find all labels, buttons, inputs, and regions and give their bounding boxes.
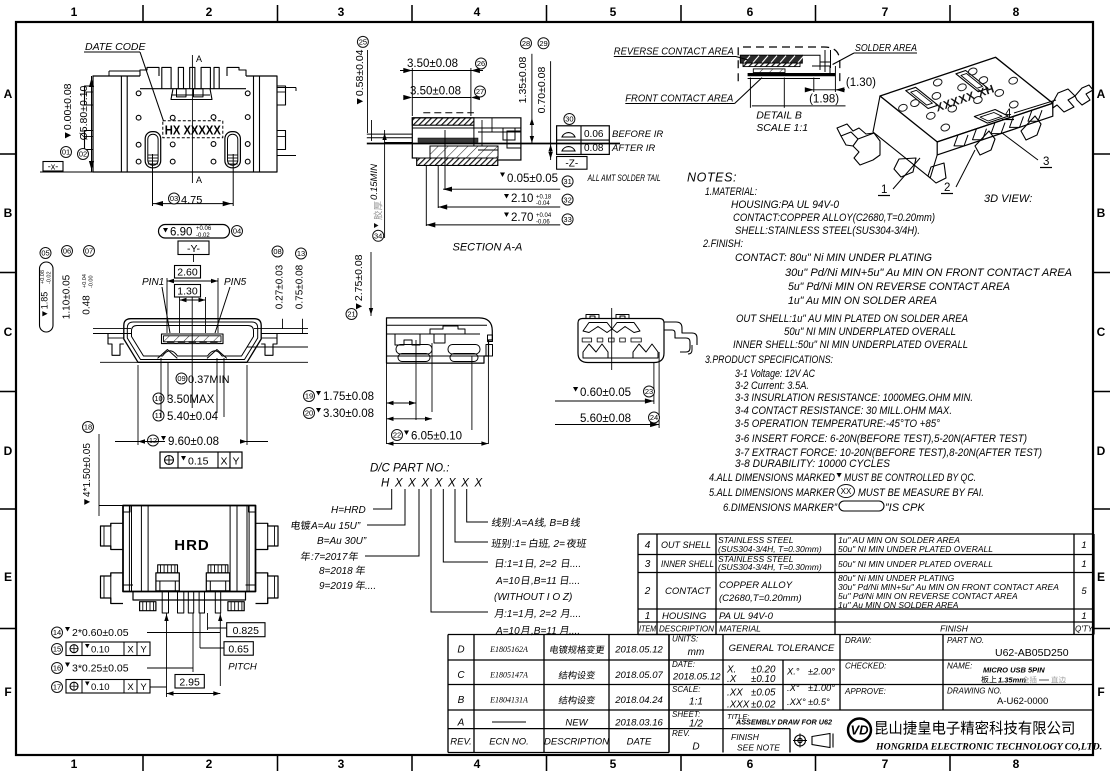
svg-text:HX XXXXX: HX XXXXX	[165, 123, 221, 138]
svg-text:, 2=2: , 2=2	[534, 559, 557, 570]
svg-text:3: 3	[338, 5, 345, 19]
svg-text:50u" NI MIN UNDER PLATED OVERA: 50u" NI MIN UNDER PLATED OVERALL	[838, 544, 993, 554]
svg-text:5u" Pd/Ni MIN ON REVERSE CONTA: 5u" Pd/Ni MIN ON REVERSE CONTACT AREA	[788, 281, 1010, 293]
svg-text:D: D	[457, 645, 464, 656]
svg-text:3: 3	[645, 559, 651, 570]
svg-text:12: 12	[149, 436, 157, 445]
svg-text:.XXX: .XXX	[727, 700, 750, 711]
svg-text:OUT SHELL:1u" AU MIN PLATED ON: OUT SHELL:1u" AU MIN PLATED ON SOLDER AR…	[736, 313, 968, 325]
svg-text:1u" Au MIN ON SOLDER AREA: 1u" Au MIN ON SOLDER AREA	[838, 600, 959, 610]
svg-text:1.MATERIAL:: 1.MATERIAL:	[705, 186, 757, 198]
svg-text:0.75±0.08: 0.75±0.08	[295, 264, 306, 309]
svg-text:DETAIL B: DETAIL B	[756, 110, 802, 122]
svg-text:SCALE:: SCALE:	[672, 685, 700, 694]
svg-text:▼0.00±0.08: ▼0.00±0.08	[62, 83, 74, 140]
svg-text:2: 2	[944, 182, 950, 194]
svg-text:E1805147A: E1805147A	[489, 671, 528, 680]
svg-text:+0.08: +0.08	[40, 270, 46, 284]
svg-text:31: 31	[563, 177, 571, 186]
svg-text:3.50±0.08: 3.50±0.08	[407, 58, 458, 70]
svg-text:GENERAL TOLERANCE: GENERAL TOLERANCE	[729, 643, 835, 654]
svg-text:±0.02: ±0.02	[751, 700, 776, 711]
svg-text:4: 4	[645, 540, 651, 551]
svg-text:Y: Y	[140, 682, 147, 693]
svg-text:22: 22	[393, 431, 401, 440]
svg-text:ECN NO.: ECN NO.	[489, 737, 529, 748]
svg-text:8=2018: 8=2018	[319, 566, 353, 577]
svg-text:8: 8	[1013, 757, 1020, 771]
svg-text:AFTER IR: AFTER IR	[611, 143, 655, 154]
svg-text:PIN5: PIN5	[224, 277, 247, 288]
svg-text:....: ....	[570, 559, 581, 570]
svg-text:SOLDER AREA: SOLDER AREA	[855, 42, 917, 54]
svg-text:2018.05.12: 2018.05.12	[614, 645, 663, 656]
svg-text:1: 1	[881, 184, 887, 196]
svg-text:1: 1	[1081, 540, 1086, 551]
svg-text:0.37MIN: 0.37MIN	[188, 374, 230, 386]
svg-text::1=1: :1=1	[504, 559, 524, 570]
svg-text:-0.02: -0.02	[47, 271, 53, 284]
svg-text:SECTION A-A: SECTION A-A	[453, 242, 523, 254]
svg-text:27: 27	[476, 87, 484, 96]
svg-text:Ø5.80±0.10: Ø5.80±0.10	[78, 85, 90, 140]
svg-text:....: ....	[569, 576, 580, 587]
svg-text:E1804131A: E1804131A	[489, 696, 528, 705]
svg-text:B: B	[1097, 206, 1106, 220]
svg-text:HOUSING: HOUSING	[662, 611, 706, 622]
svg-text:SEE NOTE: SEE NOTE	[737, 743, 780, 753]
svg-text:01: 01	[62, 148, 70, 157]
svg-text:2018.05.12: 2018.05.12	[672, 672, 721, 683]
svg-text:Y: Y	[232, 456, 239, 468]
svg-text:26: 26	[477, 59, 485, 68]
svg-text:A: A	[196, 54, 202, 64]
svg-text:+0.04: +0.04	[82, 274, 88, 288]
svg-text:0.08: 0.08	[584, 143, 604, 154]
svg-text:32: 32	[563, 195, 571, 204]
svg-text:, 2=2: , 2=2	[534, 609, 557, 620]
svg-text:B=Au 30U”: B=Au 30U”	[317, 536, 367, 547]
svg-text::A=A: :A=A	[512, 518, 534, 529]
svg-text:6.05±0.10: 6.05±0.10	[411, 431, 462, 443]
svg-text:±0.10: ±0.10	[751, 674, 776, 685]
svg-text:FINISH: FINISH	[731, 732, 760, 742]
svg-text:+0.18: +0.18	[536, 195, 552, 201]
svg-text:3.50MAX: 3.50MAX	[167, 394, 215, 406]
svg-text:”IS CPK: ”IS CPK	[885, 502, 925, 514]
svg-text:0.15MIN: 0.15MIN	[369, 164, 380, 200]
svg-text:, B=B: , B=B	[544, 518, 569, 529]
svg-text:4.75: 4.75	[181, 195, 202, 207]
svg-text:FINISH: FINISH	[940, 624, 969, 634]
svg-text:MUST BE MEASURE BY FAI.: MUST BE MEASURE BY FAI.	[858, 487, 984, 499]
svg-text:FRONT CONTACT AREA: FRONT CONTACT AREA	[625, 93, 733, 105]
svg-text:6.DIMENSIONS MARKER”: 6.DIMENSIONS MARKER”	[723, 502, 838, 514]
svg-text:(WITHOUT I O Z): (WITHOUT I O Z)	[494, 592, 572, 603]
svg-text:2: 2	[206, 5, 213, 19]
svg-text:1.30: 1.30	[177, 286, 198, 298]
svg-text:21: 21	[347, 310, 355, 319]
svg-text:-x-: -x-	[48, 162, 59, 172]
svg-text:16: 16	[53, 664, 61, 673]
svg-text:±0.5°: ±0.5°	[808, 697, 830, 707]
svg-text:REV.: REV.	[672, 729, 690, 738]
svg-text:07: 07	[85, 247, 93, 256]
svg-text:03: 03	[170, 194, 178, 203]
svg-text:4: 4	[474, 757, 481, 771]
svg-text:0.48: 0.48	[82, 295, 93, 315]
svg-text:DRAWING NO.: DRAWING NO.	[947, 687, 1002, 696]
svg-text:50u" NI MIN UNDER PLATED OVERA: 50u" NI MIN UNDER PLATED OVERALL	[838, 559, 993, 569]
svg-text:13: 13	[297, 249, 305, 258]
svg-text:MATERIAL: MATERIAL	[719, 624, 761, 634]
svg-text:1: 1	[1081, 559, 1086, 570]
svg-text:VD: VD	[850, 723, 869, 738]
svg-text:2: 2	[644, 586, 651, 597]
svg-text:3*0.25±0.05: 3*0.25±0.05	[72, 663, 129, 675]
svg-text:8: 8	[1013, 5, 1020, 19]
svg-text:.X: .X	[727, 674, 737, 685]
svg-text:6.90: 6.90	[170, 227, 192, 239]
svg-text:DESCRIPTION: DESCRIPTION	[659, 624, 715, 634]
svg-text:±0.05: ±0.05	[751, 688, 776, 699]
svg-text:-0.04: -0.04	[536, 201, 550, 207]
svg-text:5: 5	[610, 757, 617, 771]
svg-text:-Z-: -Z-	[565, 159, 578, 170]
svg-text:PART NO.: PART NO.	[947, 636, 984, 645]
svg-text:C: C	[457, 670, 465, 681]
svg-text:X: X	[127, 645, 134, 656]
svg-text:NAME:: NAME:	[947, 662, 972, 671]
svg-text:5: 5	[1081, 586, 1087, 597]
svg-text:CONTACT: CONTACT	[665, 586, 711, 597]
svg-text:34: 34	[374, 232, 382, 241]
svg-text:DATE: DATE	[627, 737, 652, 748]
svg-text:F: F	[4, 685, 11, 699]
svg-text:H X X X X X X X: H X X X X X X X	[381, 478, 483, 490]
svg-text:4: 4	[474, 5, 481, 19]
svg-text:MUST BE CONTROLLED BY QC.: MUST BE CONTROLLED BY QC.	[844, 472, 976, 484]
svg-text:D: D	[4, 444, 13, 458]
svg-text:U62-AB05D250: U62-AB05D250	[995, 647, 1069, 659]
svg-text:±1.00°: ±1.00°	[808, 683, 835, 693]
svg-text:2: 2	[206, 757, 213, 771]
svg-text:ALL AMT SOLDER TAIL: ALL AMT SOLDER TAIL	[587, 173, 661, 183]
svg-text:X: X	[127, 682, 134, 693]
svg-text:PA UL 94V-0: PA UL 94V-0	[719, 611, 774, 622]
svg-text::7=2017: :7=2017	[311, 552, 348, 563]
svg-text:29: 29	[539, 39, 547, 48]
svg-text:1: 1	[645, 611, 651, 622]
svg-text:14: 14	[53, 628, 61, 637]
svg-text:2.60: 2.60	[177, 267, 198, 279]
svg-text:A: A	[1097, 87, 1106, 101]
svg-text:0.65: 0.65	[228, 644, 249, 656]
svg-text:MICRO USB 5PIN: MICRO USB 5PIN	[983, 666, 1045, 675]
svg-text:A: A	[457, 718, 465, 729]
svg-text:2018.04.24: 2018.04.24	[614, 695, 663, 706]
svg-text:+0.06: +0.06	[196, 226, 212, 232]
svg-text:5.ALL DIMENSIONS MARKER: 5.ALL DIMENSIONS MARKER	[709, 487, 835, 499]
svg-text:7: 7	[882, 757, 889, 771]
svg-text:±2.00°: ±2.00°	[808, 667, 835, 677]
svg-text:5: 5	[610, 5, 617, 19]
svg-text:23: 23	[645, 387, 653, 396]
svg-text:.XX: .XX	[727, 688, 743, 699]
svg-text:(1.98): (1.98)	[809, 93, 839, 105]
svg-text:0.06: 0.06	[584, 129, 604, 140]
svg-text:6: 6	[747, 757, 754, 771]
svg-text:2*0.60±0.05: 2*0.60±0.05	[72, 627, 129, 639]
svg-text:HONGRIDA ELECTRONIC TECHNOLOGY: HONGRIDA ELECTRONIC TECHNOLOGY CO,LTD.	[875, 742, 1102, 753]
svg-text:0.10: 0.10	[91, 682, 110, 693]
svg-text:0.05±0.05: 0.05±0.05	[507, 173, 558, 185]
svg-text:SCALE 1:1: SCALE 1:1	[756, 122, 808, 134]
svg-text:1.75±0.08: 1.75±0.08	[323, 391, 374, 403]
svg-text:2018.03.16: 2018.03.16	[614, 718, 663, 729]
svg-text:17: 17	[53, 683, 61, 692]
svg-text:INNER SHELL:50u" NI MIN UNDERP: INNER SHELL:50u" NI MIN UNDERPLATED OVER…	[733, 339, 968, 351]
svg-text:30: 30	[565, 115, 573, 124]
svg-text:A=10: A=10	[495, 576, 520, 587]
svg-text:DATE:: DATE:	[672, 660, 695, 669]
svg-text:2018.05.07: 2018.05.07	[614, 670, 663, 681]
svg-text:Y: Y	[140, 645, 147, 656]
svg-text:(1.30): (1.30)	[846, 77, 876, 89]
svg-text:(SUS304-3/4H, T=0.30mm): (SUS304-3/4H, T=0.30mm)	[718, 562, 822, 572]
svg-text:A: A	[196, 175, 202, 185]
svg-text:CHECKED:: CHECKED:	[845, 662, 886, 671]
svg-text:X.°: X.°	[786, 667, 800, 677]
svg-text:3-1 Voltage: 12V AC: 3-1 Voltage: 12V AC	[735, 368, 815, 380]
svg-text:H=HRD: H=HRD	[331, 505, 366, 516]
svg-text:DRAW:: DRAW:	[845, 636, 872, 645]
svg-text:.X°: .X°	[787, 683, 800, 693]
svg-text:▼4*1.50±0.05: ▼4*1.50±0.05	[82, 443, 93, 507]
svg-text:COPPER ALLOY: COPPER ALLOY	[719, 580, 793, 591]
svg-text:7: 7	[882, 5, 889, 19]
svg-text:INNER SHELL: INNER SHELL	[661, 559, 714, 570]
svg-text:,B=11: ,B=11	[531, 626, 557, 637]
svg-text:A-U62-0000: A-U62-0000	[997, 696, 1048, 707]
svg-text:3: 3	[338, 757, 345, 771]
svg-text:E: E	[4, 570, 12, 584]
svg-text:REVERSE CONTACT AREA: REVERSE CONTACT AREA	[614, 46, 734, 58]
svg-text:DESCRIPTION: DESCRIPTION	[544, 737, 609, 748]
svg-text:0.70±0.08: 0.70±0.08	[536, 67, 548, 114]
svg-text:28: 28	[522, 39, 530, 48]
svg-text:C: C	[4, 325, 13, 339]
svg-text:06: 06	[63, 247, 71, 256]
svg-text:CONTACT: 80u" Ni MIN UNDER PLA: CONTACT: 80u" Ni MIN UNDER PLATING	[735, 252, 932, 264]
svg-text:, 2=: , 2=	[548, 539, 565, 550]
svg-text:04: 04	[233, 227, 241, 236]
svg-text:18: 18	[84, 423, 92, 432]
svg-text:1:1: 1:1	[689, 697, 703, 708]
svg-text:+0.04: +0.04	[536, 213, 552, 219]
svg-text::1=: :1=	[512, 539, 526, 550]
svg-text:5.60±0.08: 5.60±0.08	[580, 413, 631, 425]
svg-text:1.10±0.05: 1.10±0.05	[62, 274, 73, 319]
svg-text:NOTES:: NOTES:	[687, 171, 737, 185]
svg-text:3-2 Current: 3.5A.: 3-2 Current: 3.5A.	[735, 380, 809, 392]
svg-text:....: ....	[570, 609, 581, 620]
svg-text:(C2680,T=0.20mm): (C2680,T=0.20mm)	[719, 593, 802, 604]
svg-text:1.35±0.08: 1.35±0.08	[517, 57, 529, 104]
svg-text:9.60±0.08: 9.60±0.08	[168, 436, 219, 448]
svg-text:ITEM: ITEM	[639, 625, 656, 634]
svg-text:A: A	[4, 87, 13, 101]
svg-text:E: E	[1097, 570, 1105, 584]
svg-text:5.40±0.04: 5.40±0.04	[167, 411, 219, 423]
svg-text:24: 24	[650, 413, 658, 422]
svg-text:33: 33	[563, 215, 571, 224]
svg-text:1/2: 1/2	[689, 719, 703, 730]
svg-text:3D VIEW:: 3D VIEW:	[984, 193, 1032, 205]
svg-text:D: D	[1097, 444, 1106, 458]
svg-text:3.PRODUCT SPECIFICATIONS:: 3.PRODUCT SPECIFICATIONS:	[705, 354, 833, 366]
svg-text:9=2019: 9=2019	[319, 581, 353, 592]
svg-text:1: 1	[1081, 611, 1086, 622]
svg-text:UNITS:: UNITS:	[672, 635, 698, 644]
svg-text:3-4 CONTACT RESISTANCE: 30 MIL: 3-4 CONTACT RESISTANCE: 30 MILL.OHM MAX.	[735, 405, 952, 417]
svg-text:B: B	[4, 206, 13, 220]
svg-text:30u" Pd/Ni MIN+5u" Au MIN ON F: 30u" Pd/Ni MIN+5u" Au MIN ON FRONT CONTA…	[785, 267, 1072, 279]
svg-text:6: 6	[747, 5, 754, 19]
svg-text:0.825: 0.825	[233, 625, 259, 637]
svg-text:XX: XX	[841, 487, 852, 496]
svg-text:3-3 INSURLATION RESISTANCE: 10: 3-3 INSURLATION RESISTANCE: 1000MEG.OHM …	[735, 392, 973, 404]
svg-text:4.ALL DIMENSIONS MARKED: 4.ALL DIMENSIONS MARKED	[709, 472, 835, 484]
svg-text:REV.: REV.	[450, 737, 471, 748]
svg-text:A=10: A=10	[495, 626, 520, 637]
svg-text:3.50±0.08: 3.50±0.08	[410, 86, 461, 98]
svg-text:(SUS304-3/4H, T=0.30mm): (SUS304-3/4H, T=0.30mm)	[718, 544, 822, 554]
svg-text:SHELL:STAINLESS STEEL(SUS304-3: SHELL:STAINLESS STEEL(SUS304-3/4H).	[735, 225, 920, 237]
svg-text:D/C PART NO.:: D/C PART NO.:	[370, 463, 449, 475]
svg-text:ASSEMBLY DRAW FOR U62: ASSEMBLY DRAW FOR U62	[735, 718, 833, 727]
svg-text:-Y-: -Y-	[187, 243, 201, 255]
svg-text:3-5 OPERATION TEMPERATURE:-45°: 3-5 OPERATION TEMPERATURE:-45°TO +85°	[735, 418, 941, 430]
svg-text:▼1.85: ▼1.85	[40, 292, 50, 318]
svg-text:1u" Au MIN ON SOLDER AREA: 1u" Au MIN ON SOLDER AREA	[788, 295, 937, 307]
svg-text:05: 05	[41, 249, 49, 258]
svg-text:2.70: 2.70	[511, 212, 533, 224]
svg-text:▼0.58±0.04: ▼0.58±0.04	[354, 49, 366, 106]
svg-text:2.FINISH:: 2.FINISH:	[702, 238, 743, 250]
svg-text:....: ....	[569, 626, 580, 637]
svg-text:OUT SHELL: OUT SHELL	[661, 540, 711, 551]
svg-text:20: 20	[305, 409, 313, 418]
svg-text:09: 09	[177, 374, 185, 383]
svg-text:X: X	[220, 456, 227, 468]
svg-text:B: B	[458, 695, 465, 706]
svg-text:HRD: HRD	[174, 537, 210, 554]
svg-text:Q'TY: Q'TY	[1075, 624, 1094, 634]
svg-text:0.27±0.03: 0.27±0.03	[275, 264, 286, 309]
svg-text:2.10: 2.10	[511, 193, 533, 205]
svg-text:1: 1	[71, 5, 78, 19]
svg-text:D: D	[692, 742, 699, 753]
svg-text:3: 3	[1043, 156, 1049, 168]
svg-text:,B=11: ,B=11	[531, 576, 557, 587]
svg-text:4: 4	[1005, 108, 1012, 120]
svg-text:1.35mm: 1.35mm	[998, 676, 1026, 685]
svg-text:HOUSING:PA UL 94V-0: HOUSING:PA UL 94V-0	[731, 199, 840, 211]
svg-text:E1805162A: E1805162A	[489, 645, 528, 654]
svg-text:BEFORE IR: BEFORE IR	[612, 129, 663, 140]
svg-text:0.10: 0.10	[91, 645, 110, 656]
svg-text:PIN1: PIN1	[142, 277, 164, 288]
svg-text:3-8 DURABILITY: 10000 CYCLES: 3-8 DURABILITY: 10000 CYCLES	[735, 458, 891, 470]
svg-text:3.30±0.08: 3.30±0.08	[323, 408, 374, 420]
svg-text:CONTACT:COPPER ALLOY(C2680,T=0: CONTACT:COPPER ALLOY(C2680,T=0.20mm)	[733, 212, 935, 224]
svg-text:A=Au 15U”: A=Au 15U”	[310, 521, 361, 532]
svg-text:APPROVE:: APPROVE:	[844, 687, 886, 696]
svg-text:02: 02	[79, 150, 87, 159]
svg-text:3-6 INSERT FORCE: 6-20N(BEFORE: 3-6 INSERT FORCE: 6-20N(BEFORE TEST),5-2…	[735, 433, 1027, 445]
svg-text:C: C	[1097, 325, 1106, 339]
svg-text:1: 1	[71, 757, 78, 771]
svg-text:PITCH: PITCH	[228, 662, 257, 673]
svg-text:19: 19	[305, 392, 313, 401]
svg-text:F: F	[1097, 685, 1104, 699]
svg-text:-0.02: -0.02	[196, 233, 210, 239]
svg-text:NEW: NEW	[565, 718, 588, 729]
svg-text:0.15: 0.15	[188, 456, 209, 468]
svg-text:▼2.75±0.08: ▼2.75±0.08	[353, 254, 365, 311]
svg-text:mm: mm	[688, 647, 705, 658]
svg-text:15: 15	[53, 645, 61, 654]
svg-text:25: 25	[359, 38, 367, 47]
svg-text:-0.00: -0.00	[89, 275, 95, 288]
svg-text:0.60±0.05: 0.60±0.05	[580, 387, 631, 399]
svg-text::1=1: :1=1	[504, 609, 524, 620]
svg-text:.XX°: .XX°	[787, 697, 806, 707]
svg-text:08: 08	[273, 247, 281, 256]
svg-text:50u" NI MIN UNDERPLATED OVERAL: 50u" NI MIN UNDERPLATED OVERALL	[784, 326, 956, 338]
svg-text:DATE CODE: DATE CODE	[85, 41, 146, 53]
svg-text:....: ....	[365, 581, 376, 592]
svg-text:2.95: 2.95	[179, 677, 200, 689]
